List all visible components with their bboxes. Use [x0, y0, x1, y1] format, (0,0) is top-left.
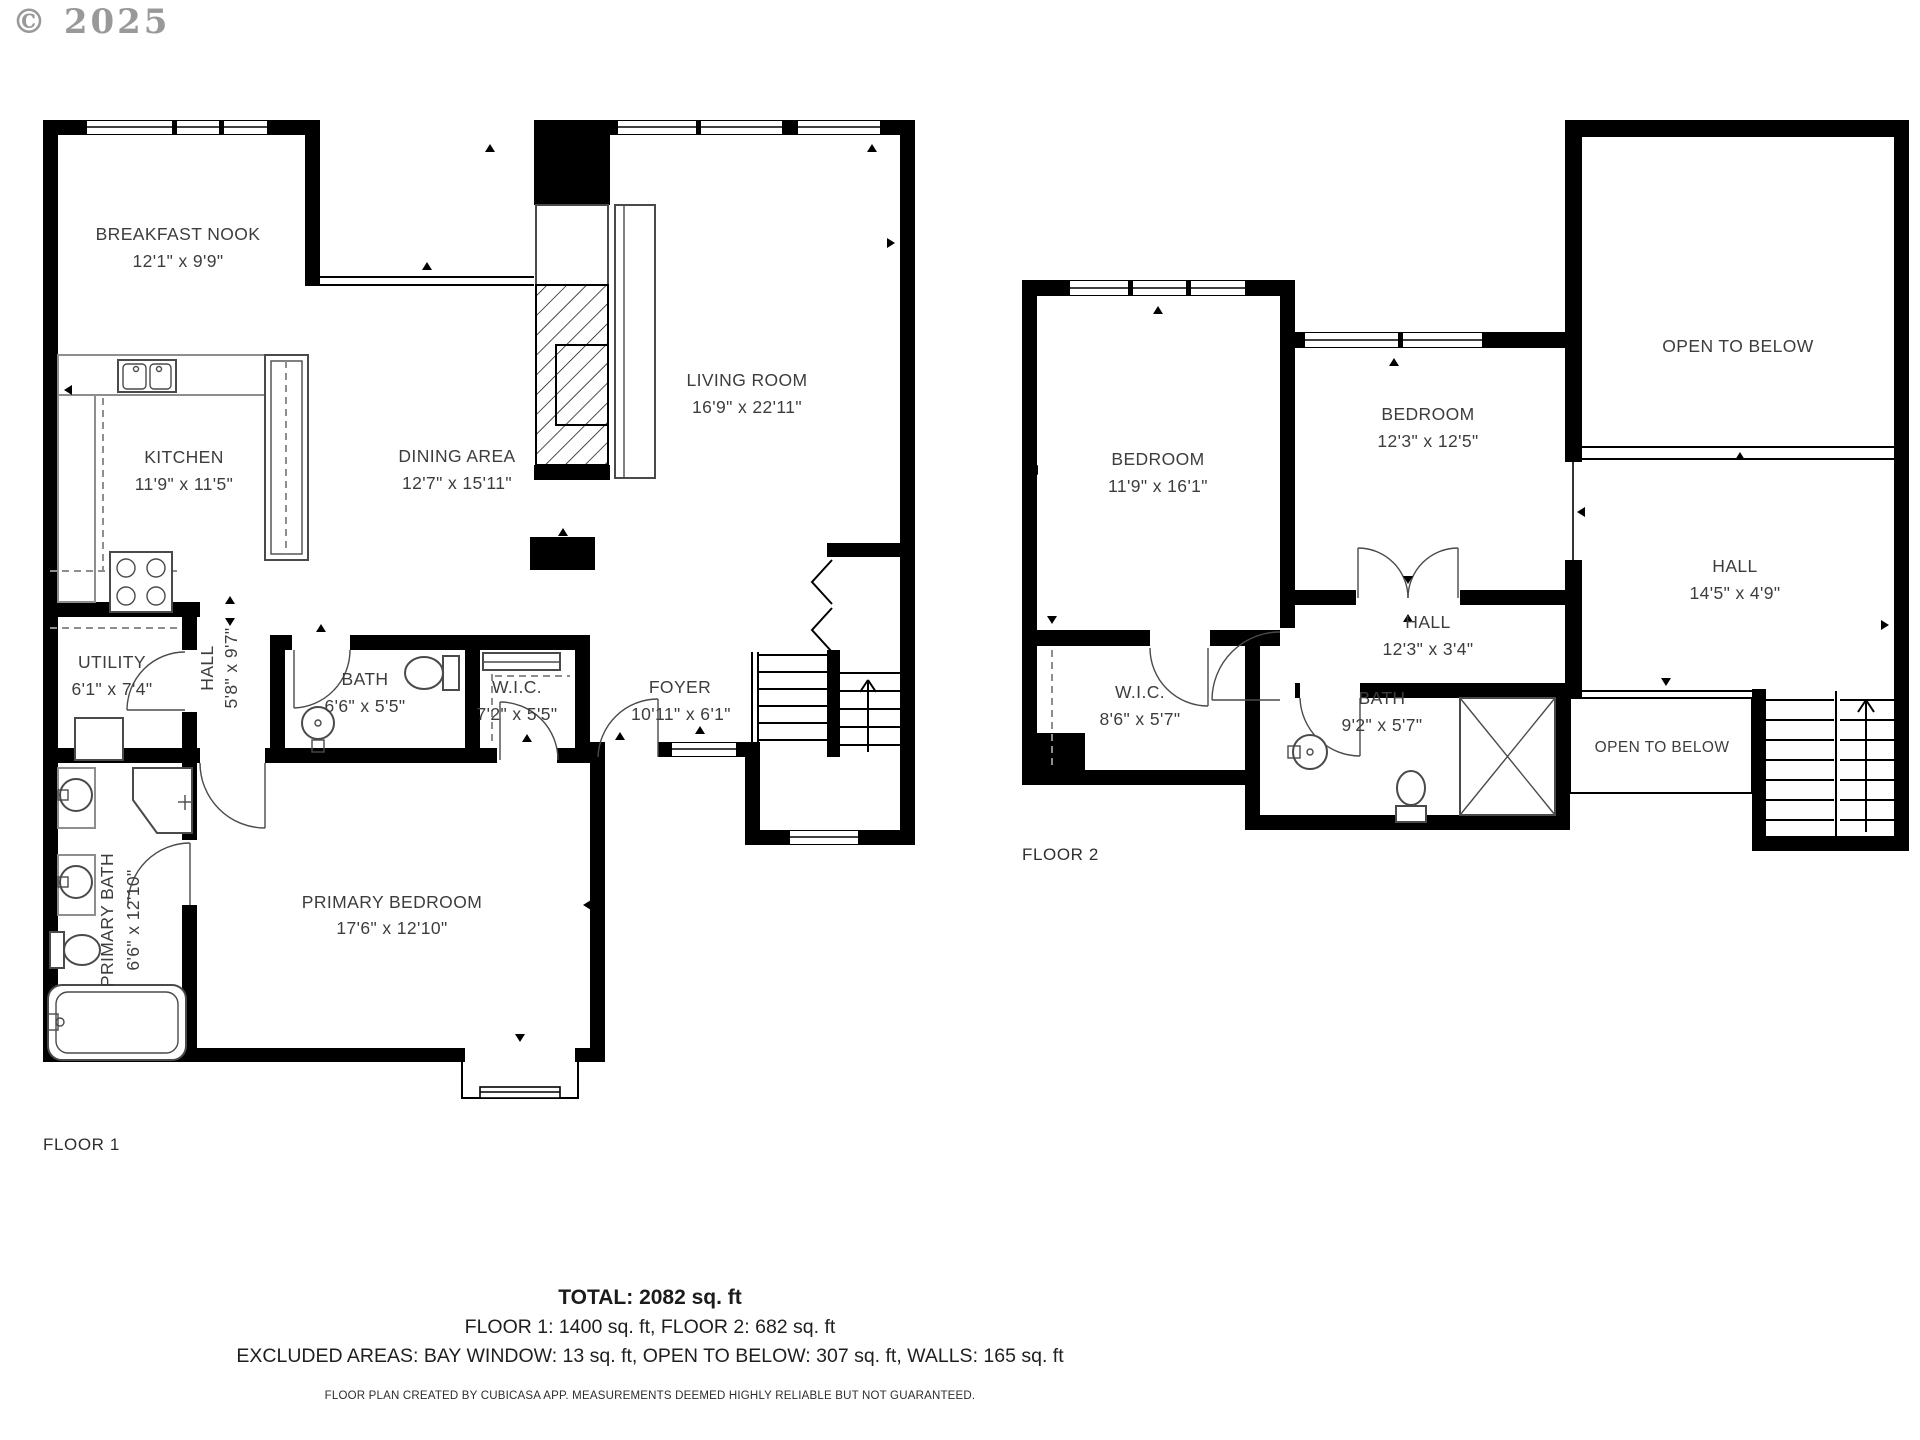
measure-arrows-floor2 [1030, 306, 1889, 686]
room-dims-foyer: 10'11" x 6'1" [631, 704, 731, 724]
room-label-living: LIVING ROOM [686, 370, 807, 390]
stairs-floor2 [1766, 691, 1894, 836]
room-dims-bedroom1: 11'9" x 16'1" [1108, 476, 1208, 496]
floor-2-tag: FLOOR 2 [1022, 845, 1099, 864]
sink-icon [60, 779, 92, 811]
closet-bifold-door-icon [812, 608, 832, 652]
excluded-areas: EXCLUDED AREAS: BAY WINDOW: 13 sq. ft, O… [0, 1345, 1300, 1368]
total-area: TOTAL: 2082 sq. ft [0, 1286, 1300, 1310]
floor-2-plan: BEDROOM 11'9" x 16'1" BEDROOM 12'3" x 12… [1022, 120, 1909, 864]
room-label-wic: W.I.C. [492, 677, 542, 697]
area-summary: TOTAL: 2082 sq. ft FLOOR 1: 1400 sq. ft,… [0, 1286, 1300, 1402]
stairs-floor1 [752, 560, 900, 752]
disclaimer: FLOOR PLAN CREATED BY CUBICASA APP. MEAS… [0, 1390, 1300, 1402]
room-dims-dining: 12'7" x 15'11" [402, 473, 512, 493]
appliance-icon [75, 718, 123, 760]
room-label-primary-bedroom: PRIMARY BEDROOM [302, 892, 482, 912]
room-dims-bath2: 9'2" x 5'7" [1342, 715, 1423, 735]
sink-icon [60, 866, 92, 898]
room-dims-kitchen: 11'9" x 11'5" [135, 474, 234, 494]
room-label-dining: DINING AREA [398, 446, 515, 466]
room-dims-hall: 5'8" x 9'7" [221, 628, 241, 709]
room-label-breakfast-nook: BREAKFAST NOOK [96, 224, 261, 244]
room-dims-living: 16'9" x 22'11" [692, 397, 802, 417]
room-label-bedroom1: BEDROOM [1111, 449, 1204, 469]
room-dims-hall-left: 12'3" x 3'4" [1382, 639, 1473, 659]
room-label-utility: UTILITY [78, 652, 146, 672]
toilet-icon [405, 657, 443, 689]
primary-bedroom-door-icon [200, 763, 265, 828]
room-label-primary-bath: PRIMARY BATH [97, 853, 117, 987]
room-label-hall: HALL [197, 645, 217, 690]
floor-areas: FLOOR 1: 1400 sq. ft, FLOOR 2: 682 sq. f… [0, 1316, 1300, 1339]
room-dims-primary-bedroom: 17'6" x 12'10" [336, 918, 447, 938]
kitchen-sink-icon [118, 360, 176, 392]
floor-1-tag: FLOOR 1 [43, 1135, 120, 1154]
toilet-icon [64, 935, 100, 965]
room-label-bath2: BATH [1359, 688, 1406, 708]
room-dims-hall-right: 14'5" x 4'9" [1689, 583, 1780, 603]
room-label-open-below-small: OPEN TO BELOW [1595, 739, 1730, 756]
room-dims-primary-bath: 6'6" x 12'10" [123, 869, 143, 970]
toilet-icon [1397, 771, 1425, 805]
room-dims-bath: 6'6" x 5'5" [325, 696, 406, 716]
sink-icon [1293, 735, 1327, 769]
bathtub-icon [48, 985, 186, 1060]
room-dims-wic2: 8'6" x 5'7" [1100, 709, 1181, 729]
room-dims-wic: 7'2" x 5'5" [477, 704, 558, 724]
room-label-wic2: W.I.C. [1115, 682, 1165, 702]
room-dims-utility: 6'1" x 7'4" [72, 679, 153, 699]
room-label-open-below-large: OPEN TO BELOW [1662, 336, 1813, 356]
floor-plan-page: © 2025 [0, 0, 1920, 1440]
floor-plan-drawing: BREAKFAST NOOK 12'1" x 9'9" KITCHEN 11'9… [0, 0, 1920, 1440]
floor-1-plan: BREAKFAST NOOK 12'1" x 9'9" KITCHEN 11'9… [43, 120, 915, 1154]
room-label-bath: BATH [342, 669, 389, 689]
room-label-kitchen: KITCHEN [144, 447, 224, 467]
room-label-bedroom2: BEDROOM [1381, 404, 1474, 424]
room-label-foyer: FOYER [649, 677, 711, 697]
room-label-hall-left: HALL [1405, 612, 1450, 632]
room-label-hall-right: HALL [1712, 556, 1757, 576]
shower-icon [133, 768, 192, 833]
room-dims-breakfast-nook: 12'1" x 9'9" [132, 251, 223, 271]
primary-bath-fixtures [48, 763, 265, 1060]
closet-bifold-door-icon [812, 560, 832, 604]
room-dims-bedroom2: 12'3" x 12'5" [1377, 431, 1478, 451]
